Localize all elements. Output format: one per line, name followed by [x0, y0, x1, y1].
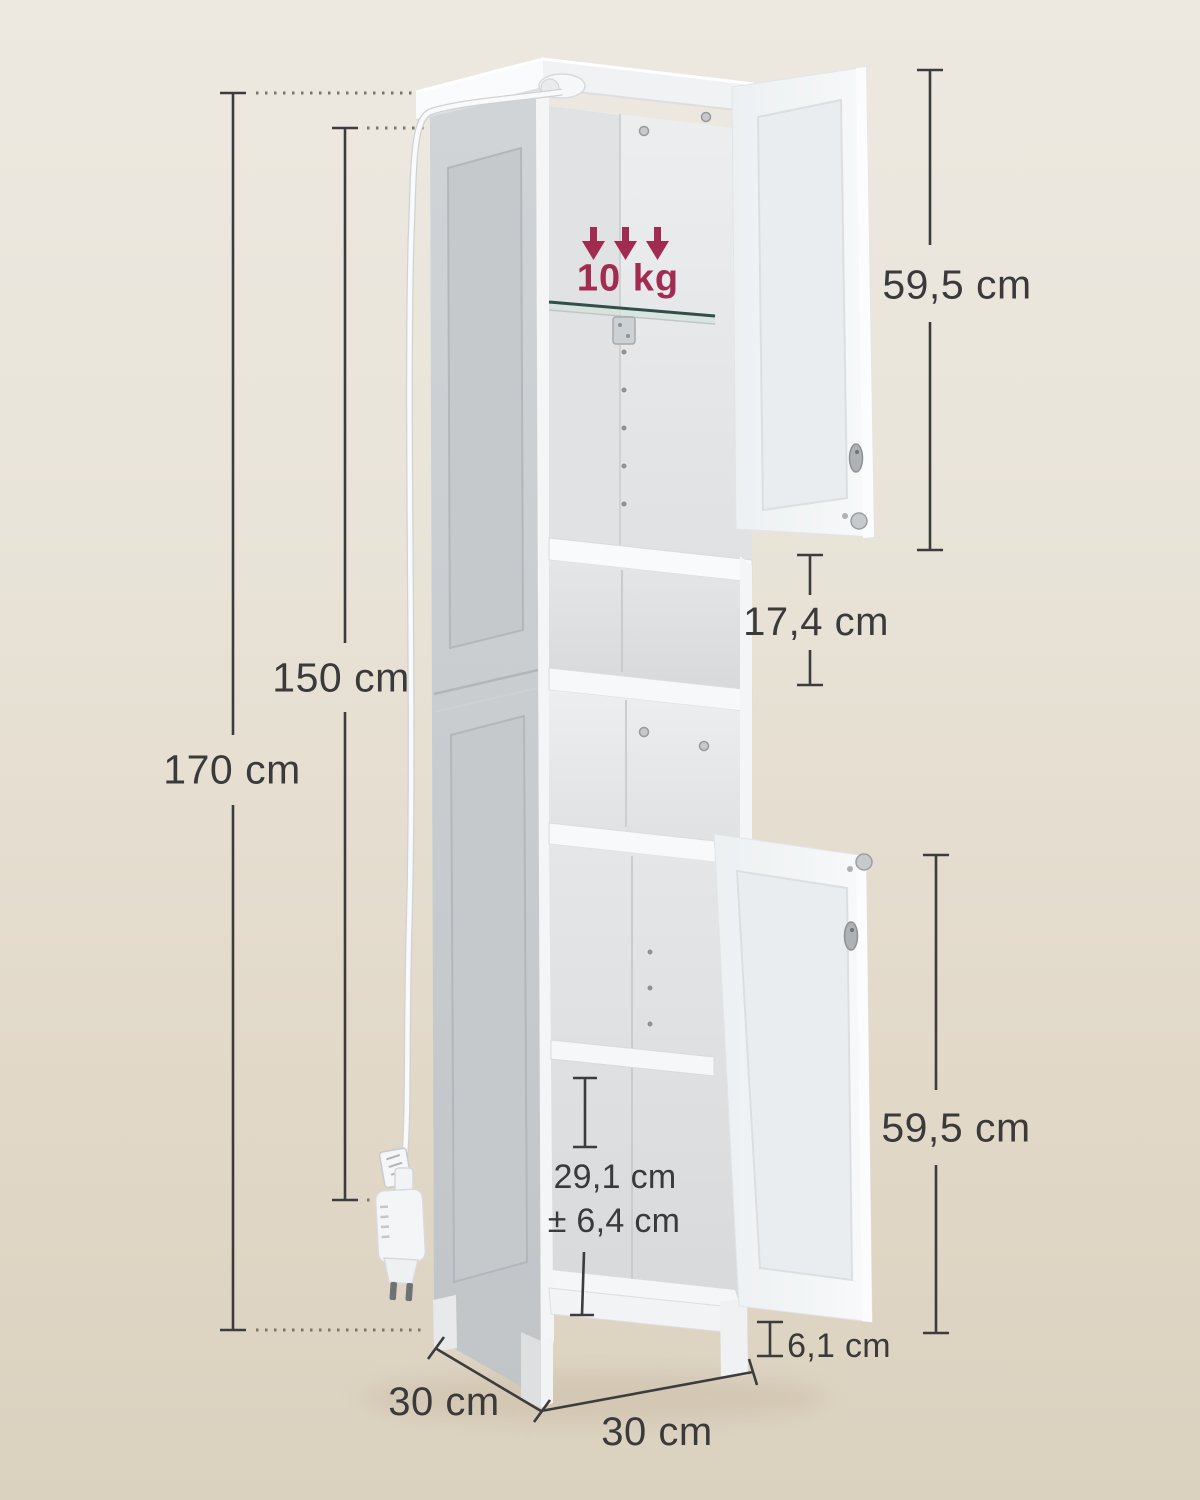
- dim-cabinet-height-label: 150 cm: [272, 656, 409, 699]
- lower-door: [714, 834, 872, 1322]
- dimension-lines-left: [220, 93, 358, 1330]
- dim-open-shelf-height-label: 17,4 cm: [743, 601, 889, 643]
- dim-leg-height-label: 6,1 cm: [787, 1329, 891, 1365]
- product-dimension-diagram: 10 kg 170 cm 150 cm 59,5 cm 17,4 cm 59,5…: [0, 0, 1200, 1500]
- door-hinge: [856, 854, 872, 870]
- load-arrow-down-icon: [582, 227, 669, 260]
- load-capacity-label: 10 kg: [577, 258, 679, 301]
- magnetic-catch: [845, 922, 858, 950]
- leader-lines: [256, 93, 424, 1330]
- dim-upper-door-height-label: 59,5 cm: [882, 263, 1031, 306]
- dim-total-height-label: 170 cm: [163, 748, 300, 791]
- magnetic-catch: [850, 444, 863, 472]
- dim-shelf-tolerance-label: ± 6,4 cm: [548, 1204, 681, 1240]
- dim-lower-door-height-label: 59,5 cm: [881, 1106, 1030, 1149]
- upper-door: [732, 67, 874, 538]
- dim-shelf-height-label: 29,1 cm: [553, 1160, 676, 1196]
- door-hinge: [851, 513, 867, 529]
- dim-depth-label: 30 cm: [388, 1381, 499, 1423]
- dim-width-label: 30 cm: [601, 1411, 712, 1453]
